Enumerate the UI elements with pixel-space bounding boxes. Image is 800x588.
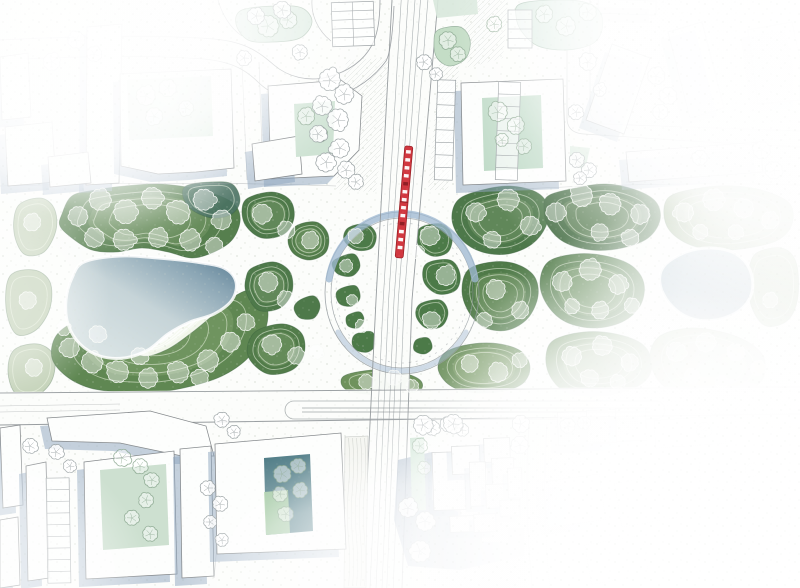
paper-texture-overlay xyxy=(0,0,800,588)
masterplan-canvas xyxy=(0,0,800,588)
site-plan-svg xyxy=(0,0,800,588)
